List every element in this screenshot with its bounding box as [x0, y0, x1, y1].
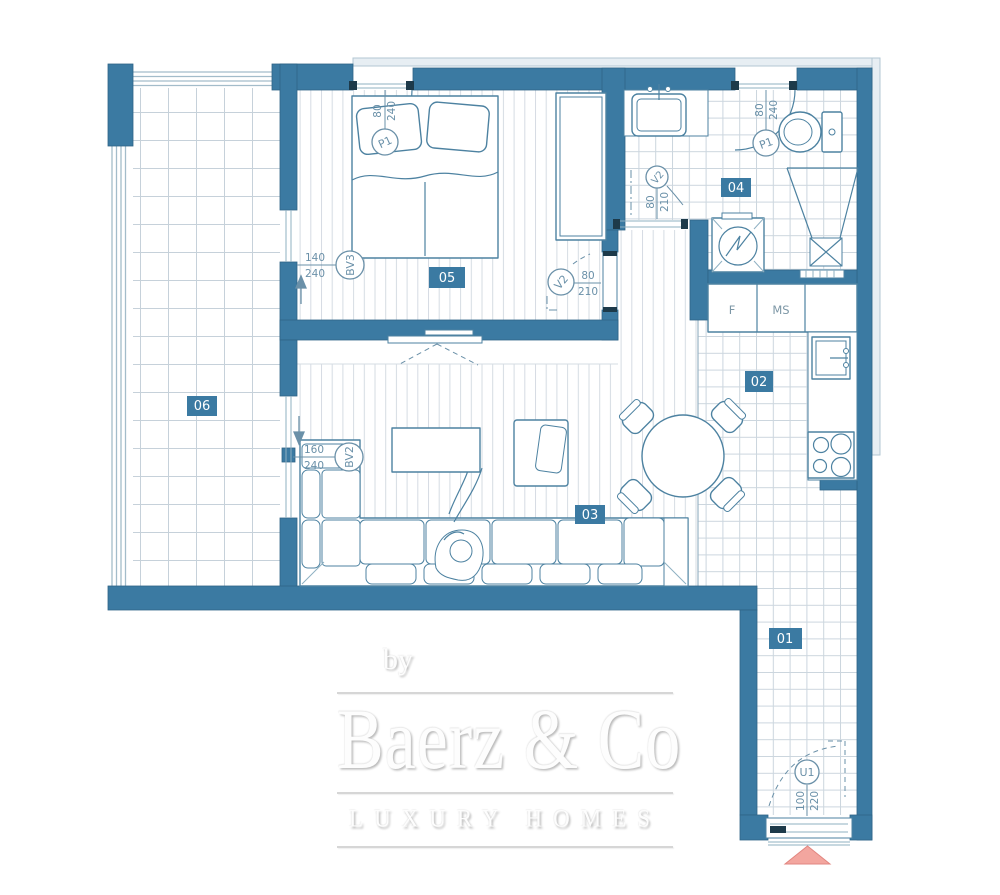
tv-viewing-lines — [398, 344, 478, 365]
door-code: U1 — [799, 766, 814, 779]
dining-table — [642, 415, 724, 497]
dim-height: 240 — [305, 268, 325, 280]
dim-height: 210 — [659, 192, 671, 212]
wall-bottom — [108, 586, 757, 610]
sofa-back-pad — [540, 564, 590, 584]
room-badge-kitchen: 02 — [745, 371, 773, 392]
sofa-back-cushion — [302, 470, 320, 518]
wall-hallway-left — [740, 610, 757, 815]
fridge-label: F — [729, 303, 736, 317]
sofa-back-pad — [366, 564, 416, 584]
toilet — [779, 112, 842, 152]
door-hinge — [789, 81, 797, 90]
wall-terrace-post — [108, 64, 133, 146]
room-number: 02 — [751, 375, 768, 390]
sofa-seat — [360, 520, 424, 564]
wall-bedroom-left — [280, 64, 297, 210]
sofa-seat — [558, 520, 622, 564]
coffee-table — [392, 428, 480, 472]
washing-machine — [712, 213, 764, 272]
dim-width: 160 — [304, 444, 324, 456]
brand-tagline: LUXURY HOMES — [337, 796, 673, 842]
brand-watermark: by Baerz & Co LUXURY HOMES — [337, 640, 673, 848]
wall-entry-right — [850, 815, 872, 840]
dim-width: 80 — [754, 103, 766, 116]
bathroom-sink — [624, 84, 708, 136]
stove — [808, 432, 854, 478]
sofa-seat — [492, 520, 556, 564]
window-code: BV3 — [344, 254, 357, 276]
room-number: 05 — [439, 271, 456, 286]
sofa-seat — [322, 470, 360, 518]
dim-width: 80 — [372, 104, 384, 117]
sofa-seat — [322, 520, 360, 566]
wall-corridor-kitchen — [690, 220, 708, 320]
dim-height: 210 — [578, 286, 598, 298]
room-number: 03 — [582, 508, 599, 523]
room-badge-terrace: 06 — [187, 396, 217, 416]
faucet-knob — [648, 87, 653, 92]
person-head — [450, 540, 472, 562]
pantry-label: MS — [772, 303, 789, 317]
armchair — [514, 420, 568, 486]
corridor-floor — [618, 230, 698, 364]
door-hinge — [731, 81, 739, 90]
faucet-knob — [666, 87, 671, 92]
sofa-armrest — [664, 518, 688, 586]
room-number: 01 — [777, 632, 794, 647]
wall-living-left-upper — [280, 340, 297, 396]
sofa-back-pad — [598, 564, 642, 584]
watermark-by: by — [337, 640, 673, 680]
dim-width: 80 — [581, 270, 594, 282]
dim-height: 240 — [768, 100, 780, 120]
pillow — [426, 101, 490, 152]
entrance-marker — [785, 846, 830, 864]
terrace-bedroom-window — [286, 210, 291, 262]
dim-width: 140 — [305, 252, 325, 264]
wall-top-middle — [413, 68, 735, 90]
door-handle — [770, 826, 786, 833]
sofa-seat — [624, 518, 664, 566]
exterior-band-right — [872, 58, 880, 455]
dim-height: 240 — [304, 460, 324, 472]
sofa-back-pad — [482, 564, 532, 584]
exterior-band-top — [353, 58, 872, 66]
kitchen-cabinets: F MS — [708, 284, 857, 332]
dim-width: 80 — [645, 195, 657, 208]
room-badge-hallway: 01 — [769, 628, 802, 649]
door-hinge — [349, 81, 357, 90]
kitchen-sink — [812, 337, 850, 379]
brand-name: Baerz & Co — [337, 684, 673, 799]
room-badge-living: 03 — [575, 505, 605, 524]
dim-height: 220 — [809, 791, 821, 811]
room-badge-bedroom: 05 — [429, 267, 465, 288]
sofa-back-cushion — [302, 520, 320, 568]
bed — [352, 96, 498, 258]
wardrobe — [556, 93, 606, 240]
wall-entry-left — [740, 815, 768, 840]
floor-plan-page: F MS — [0, 0, 1000, 895]
room-number: 04 — [728, 181, 745, 196]
terrace-floor — [133, 88, 280, 586]
room-badge-bathroom: 04 — [721, 178, 751, 197]
window-code: BV2 — [343, 446, 356, 468]
dim-height: 240 — [386, 101, 398, 121]
door-hinge — [406, 81, 414, 90]
wall-living-left-lower — [280, 518, 297, 588]
watermark-divider — [337, 846, 673, 848]
window-mullion — [282, 448, 295, 462]
wall-right — [857, 68, 872, 840]
room-number: 06 — [194, 399, 211, 414]
dim-width: 100 — [795, 791, 807, 811]
